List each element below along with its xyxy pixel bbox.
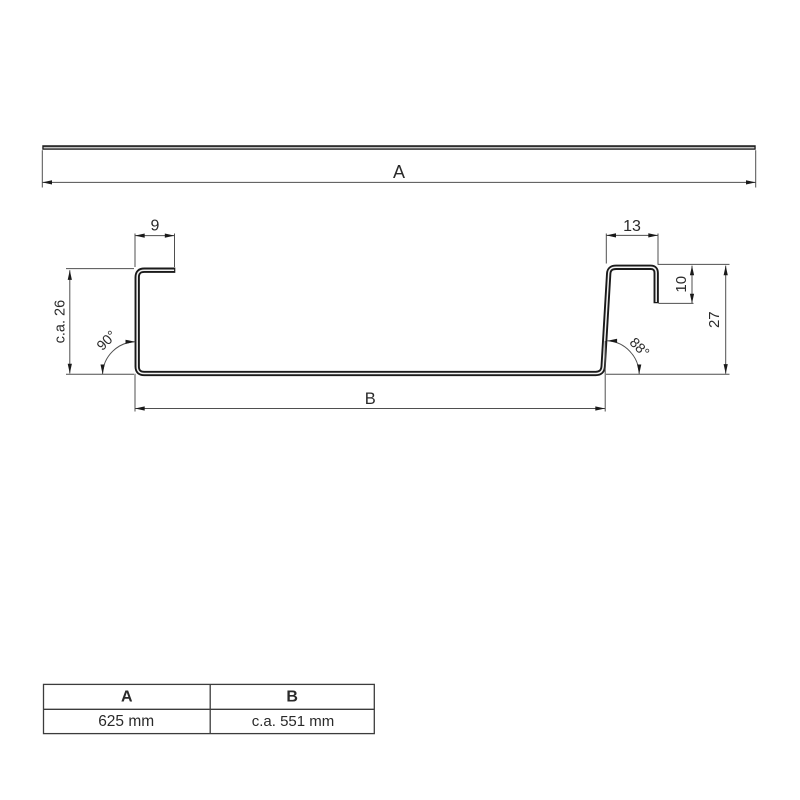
svg-text:A: A [121,689,133,706]
svg-text:9: 9 [151,217,160,234]
svg-text:10: 10 [673,276,690,293]
svg-text:27: 27 [706,311,723,328]
svg-text:c.a. 26: c.a. 26 [53,300,69,344]
svg-text:B: B [365,390,376,408]
svg-text:625 mm: 625 mm [98,713,154,730]
svg-text:B: B [286,689,298,706]
svg-text:A: A [393,162,405,182]
svg-text:13: 13 [623,218,641,235]
svg-text:c.a. 551 mm: c.a. 551 mm [252,713,335,730]
